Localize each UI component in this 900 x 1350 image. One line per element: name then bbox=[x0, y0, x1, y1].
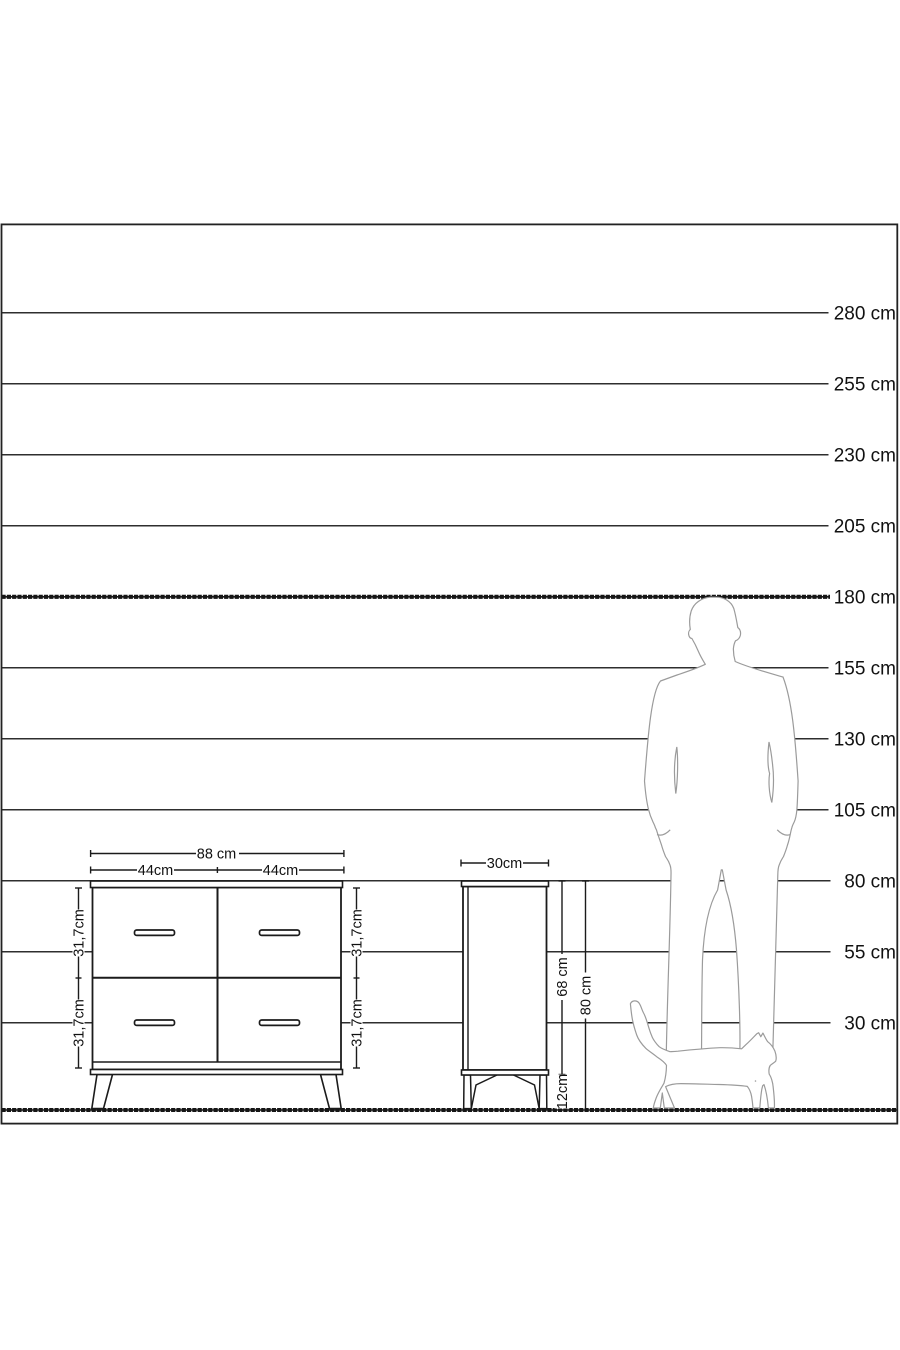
svg-text:68 cm: 68 cm bbox=[555, 957, 571, 997]
svg-text:31,7cm: 31,7cm bbox=[72, 909, 88, 957]
svg-text:44cm: 44cm bbox=[263, 863, 298, 879]
svg-text:130 cm: 130 cm bbox=[834, 729, 896, 750]
svg-text:31,7cm: 31,7cm bbox=[350, 909, 366, 957]
svg-text:80 cm: 80 cm bbox=[844, 871, 896, 892]
svg-text:280 cm: 280 cm bbox=[834, 303, 896, 324]
svg-text:88 cm: 88 cm bbox=[197, 847, 237, 863]
svg-text:55 cm: 55 cm bbox=[844, 942, 896, 963]
svg-text:205 cm: 205 cm bbox=[834, 516, 896, 537]
svg-text:30 cm: 30 cm bbox=[844, 1013, 896, 1034]
svg-text:180 cm: 180 cm bbox=[834, 587, 896, 608]
svg-text:230 cm: 230 cm bbox=[834, 445, 896, 466]
svg-text:31,7cm: 31,7cm bbox=[350, 999, 366, 1047]
svg-text:255 cm: 255 cm bbox=[834, 374, 896, 395]
svg-text:155 cm: 155 cm bbox=[834, 658, 896, 679]
svg-text:80 cm: 80 cm bbox=[579, 976, 595, 1016]
svg-text:105 cm: 105 cm bbox=[834, 800, 896, 821]
svg-text:31,7cm: 31,7cm bbox=[72, 999, 88, 1047]
svg-text:44cm: 44cm bbox=[138, 863, 173, 879]
svg-text:30cm: 30cm bbox=[487, 856, 522, 872]
svg-text:12cm: 12cm bbox=[555, 1074, 571, 1109]
